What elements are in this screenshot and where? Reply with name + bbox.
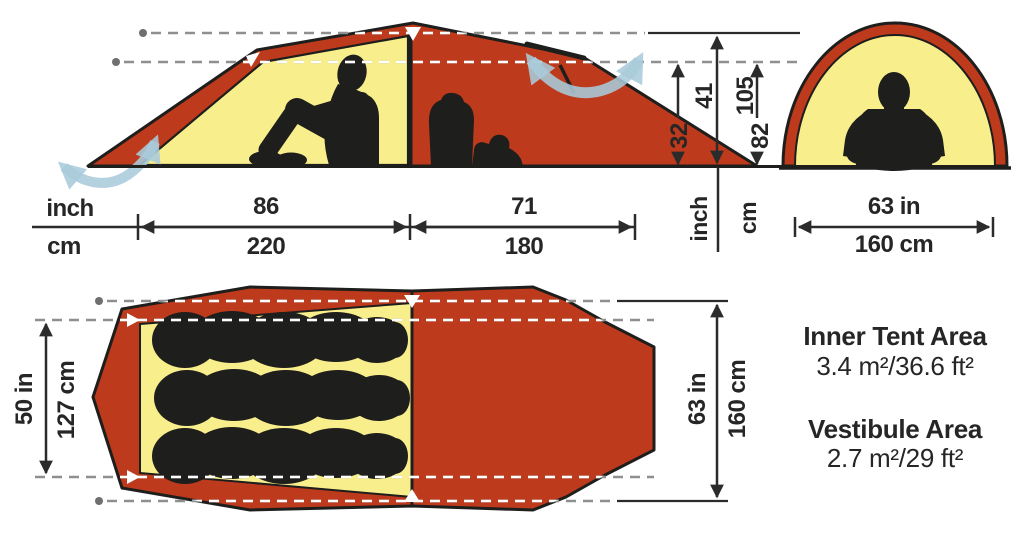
tent-dimension-diagram: inch cm 86 220 71 180 32 41 105 82 inch … [0,0,1024,540]
plan-outer-width-cm: 160 cm [724,360,751,438]
front-width-inch: 63 in [868,193,920,220]
length-unit-cm: cm [47,233,81,260]
length-unit-inch: inch [46,195,93,222]
vestibule-length-cm: 180 [505,233,544,260]
plan-inner-width-dimension: 50 in 127 cm [11,324,80,473]
areas-panel: Inner Tent Area 3.4 m²/36.6 ft² Vestibul… [803,321,987,473]
sleeping-bag-2 [154,369,410,426]
inner-length-inch: 86 [253,193,279,220]
peak-height-cm: 105 [732,77,759,116]
inner-tent-area-label: Inner Tent Area [803,321,987,351]
front-width-cm: 160 cm [855,231,933,258]
sleeping-bag-3 [152,427,408,484]
inner-tent-area-value: 3.4 m²/36.6 ft² [816,351,974,381]
side-view: inch cm 86 220 71 180 32 41 105 82 inch … [32,23,800,260]
vestibule-length-inch: 71 [511,193,537,220]
sleeping-bags [152,311,410,484]
inner-height-cm: 82 [747,123,774,149]
ref-dot-peak [139,29,147,37]
plan-inner-width-inch: 50 in [11,373,38,425]
backpack-silhouette [429,93,474,166]
height-unit-inch: inch [686,196,712,241]
peak-height-inch: 41 [691,83,718,109]
inner-length-cm: 220 [247,233,286,260]
height-unit-cm: cm [735,202,761,234]
plan-outer-width-inch: 63 in [684,373,711,425]
top-view: 50 in 127 cm 63 in 160 cm [11,287,751,510]
inner-height-inch: 32 [666,123,693,149]
length-dimensions: inch cm 86 220 71 180 [32,193,636,260]
front-width-dimension: 63 in 160 cm [795,193,993,258]
plan-dot-bottom [95,497,103,505]
diagram-canvas: inch cm 86 220 71 180 32 41 105 82 inch … [0,0,1024,540]
front-view: 63 in 160 cm [779,23,1011,258]
vestibule-area-value: 2.7 m²/29 ft² [827,443,964,473]
ref-dot-inner [112,58,120,66]
plan-dot-top [95,297,103,305]
plan-inner-width-cm: 127 cm [53,361,80,439]
vestibule-area-label: Vestibule Area [808,414,983,444]
